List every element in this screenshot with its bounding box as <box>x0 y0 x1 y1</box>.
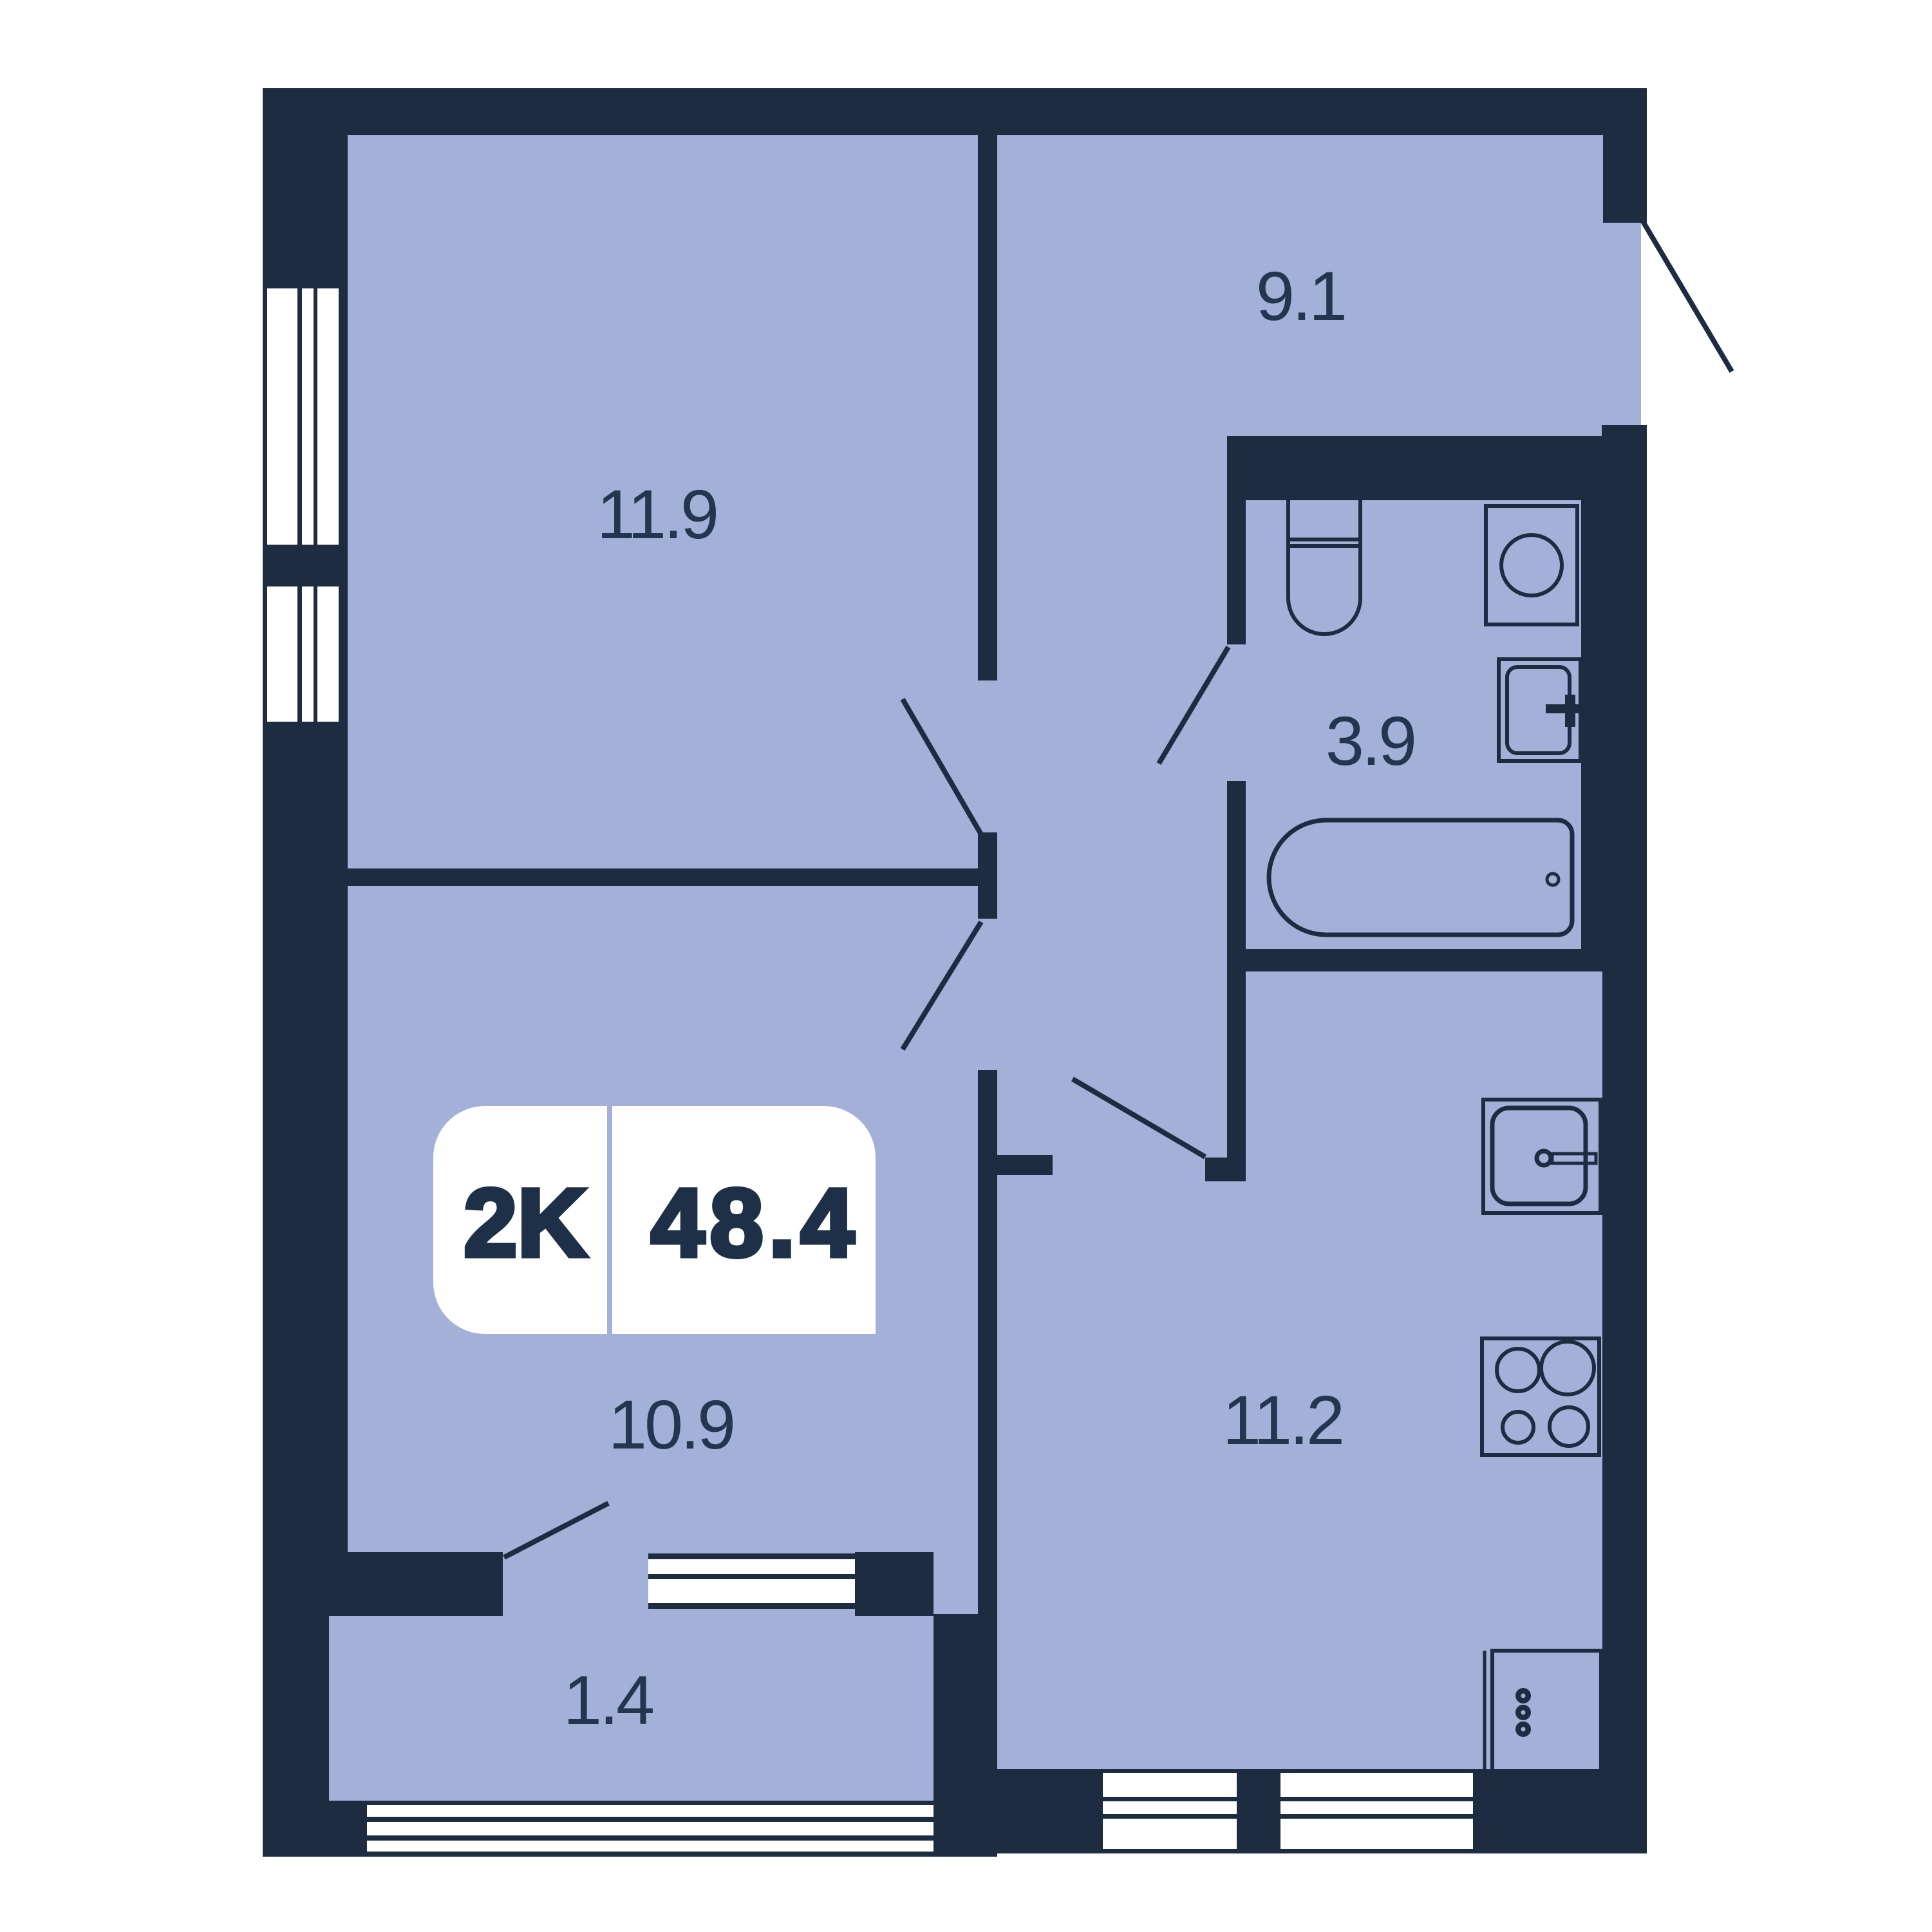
svg-text:11.9: 11.9 <box>597 475 717 553</box>
svg-text:1.4: 1.4 <box>563 1661 653 1739</box>
svg-text:9.1: 9.1 <box>1256 257 1345 335</box>
svg-text:3.9: 3.9 <box>1326 702 1414 780</box>
svg-text:48.4: 48.4 <box>651 1168 859 1277</box>
svg-text:10.9: 10.9 <box>608 1385 733 1463</box>
svg-text:11.2: 11.2 <box>1223 1381 1342 1459</box>
svg-text:2K: 2K <box>464 1168 587 1277</box>
